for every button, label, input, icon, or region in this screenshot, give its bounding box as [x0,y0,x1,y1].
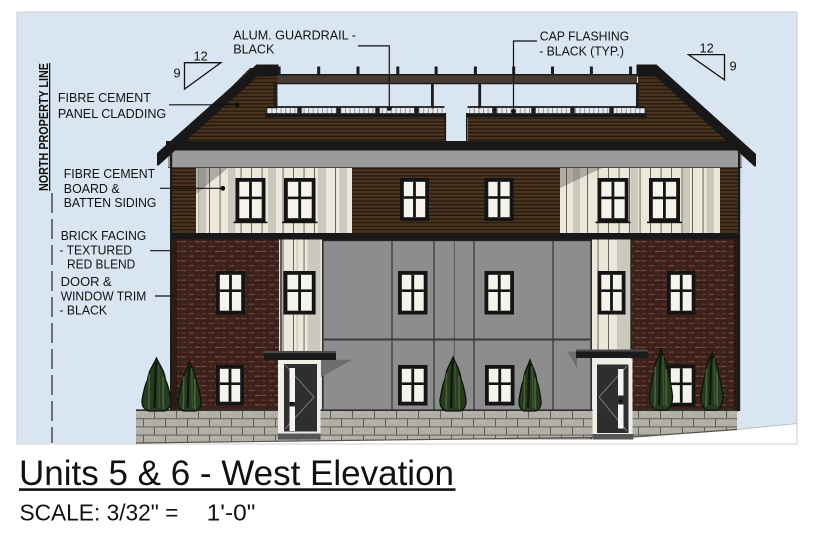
svg-text:9: 9 [174,66,181,81]
svg-text:CAP FLASHING: CAP FLASHING [540,29,629,44]
svg-text:BRICK FACING: BRICK FACING [61,228,147,243]
svg-text:1'-0": 1'-0" [207,500,256,526]
svg-text:PANEL CLADDING: PANEL CLADDING [58,106,166,121]
svg-text:- BLACK: - BLACK [59,302,107,317]
svg-text:FIBRE CEMENT: FIBRE CEMENT [58,90,151,105]
svg-text:Units 5 & 6 - West Elevation: Units 5 & 6 - West Elevation [19,454,454,493]
svg-text:RED BLEND: RED BLEND [67,257,135,272]
svg-text:- BLACK (TYP.): - BLACK (TYP.) [539,44,624,59]
svg-text:9: 9 [730,58,737,73]
svg-text:12: 12 [700,41,714,56]
svg-text:12: 12 [194,49,208,64]
svg-text:FIBRE CEMENT: FIBRE CEMENT [64,166,155,181]
svg-text:- TEXTURED: - TEXTURED [59,242,132,257]
svg-text:DOOR &: DOOR & [61,274,112,289]
svg-text:BATTEN SIDING: BATTEN SIDING [64,195,157,210]
svg-text:NORTH PROPERTY LINE: NORTH PROPERTY LINE [37,63,51,191]
svg-text:BOARD &: BOARD & [64,181,120,196]
svg-text:SCALE: 3/32" =: SCALE: 3/32" = [20,500,179,526]
svg-text:BLACK: BLACK [233,41,275,56]
svg-text:WINDOW TRIM: WINDOW TRIM [61,288,147,303]
